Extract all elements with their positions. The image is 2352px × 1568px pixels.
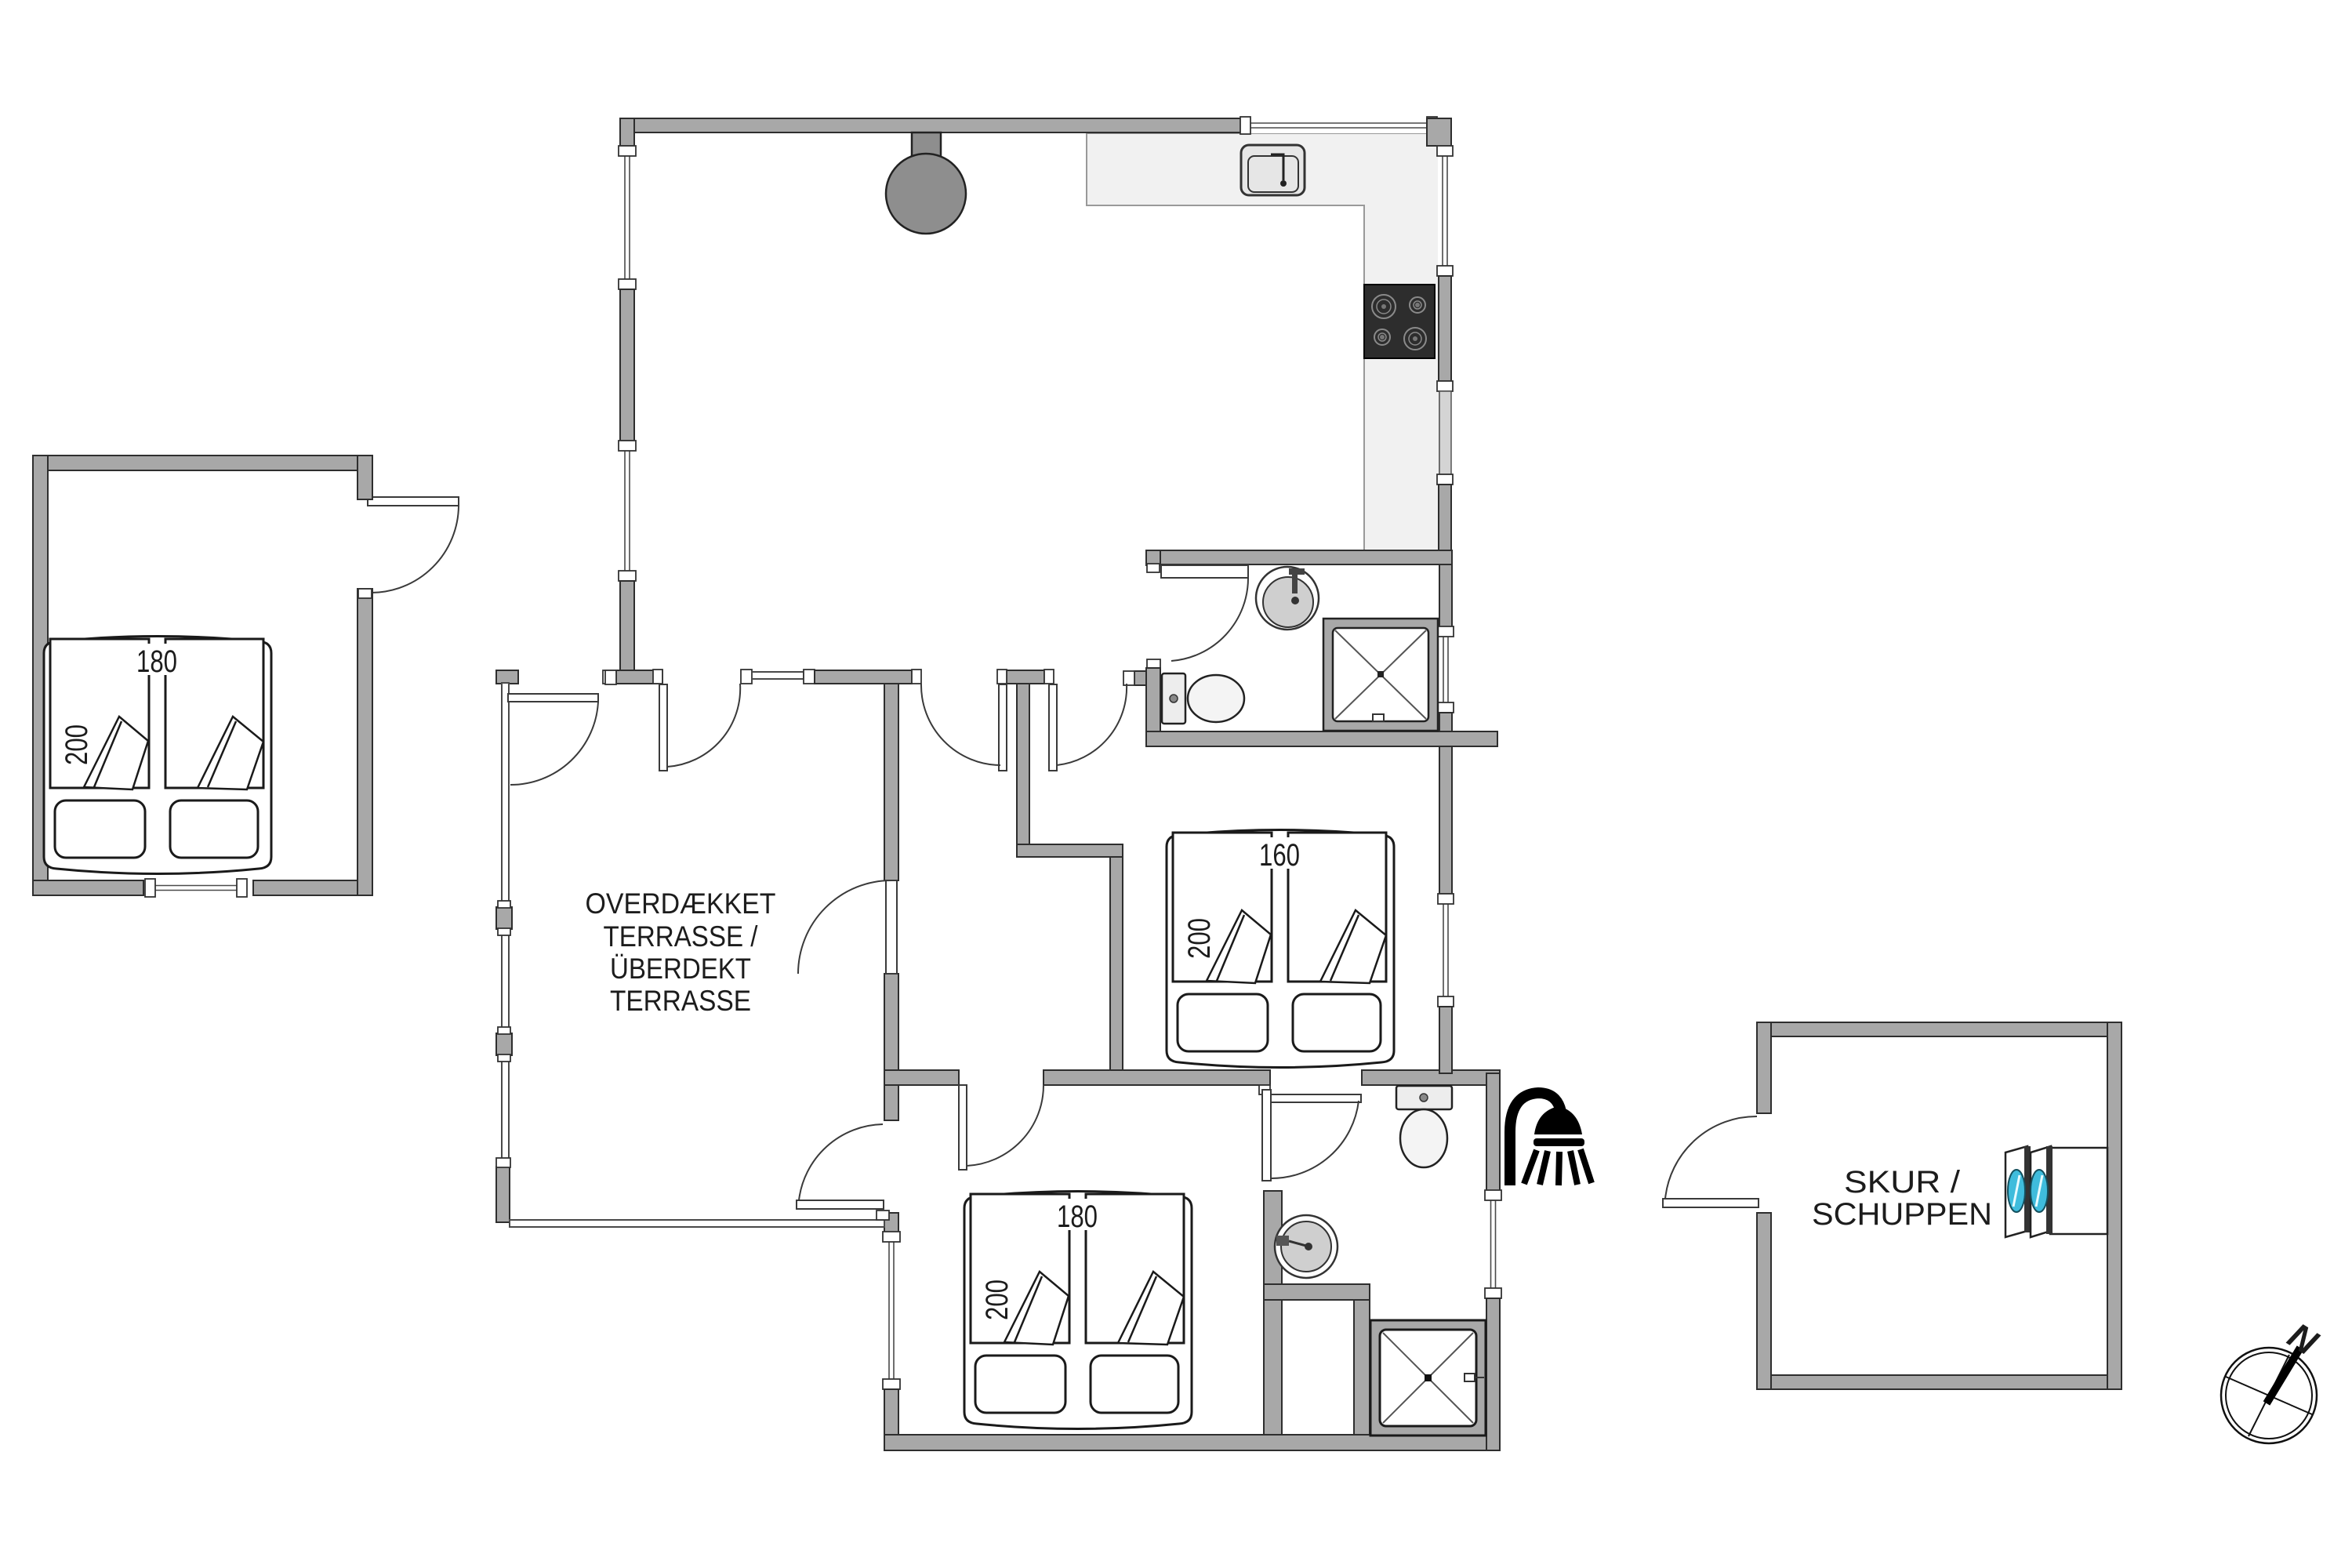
svg-text:TERRASSE: TERRASSE xyxy=(610,985,751,1017)
svg-text:180: 180 xyxy=(136,644,177,679)
svg-text:SCHUPPEN: SCHUPPEN xyxy=(1812,1197,1992,1232)
svg-text:OVERDÆKKET: OVERDÆKKET xyxy=(586,887,776,920)
svg-text:ÜBERDEKT: ÜBERDEKT xyxy=(610,953,751,985)
svg-text:180: 180 xyxy=(1057,1200,1098,1234)
svg-text:200: 200 xyxy=(980,1279,1014,1320)
svg-text:200: 200 xyxy=(1182,918,1217,959)
svg-text:160: 160 xyxy=(1259,838,1300,873)
svg-text:200: 200 xyxy=(60,724,94,765)
svg-text:SKUR /: SKUR / xyxy=(1844,1165,1961,1200)
svg-text:TERRASSE /: TERRASSE / xyxy=(604,920,759,953)
